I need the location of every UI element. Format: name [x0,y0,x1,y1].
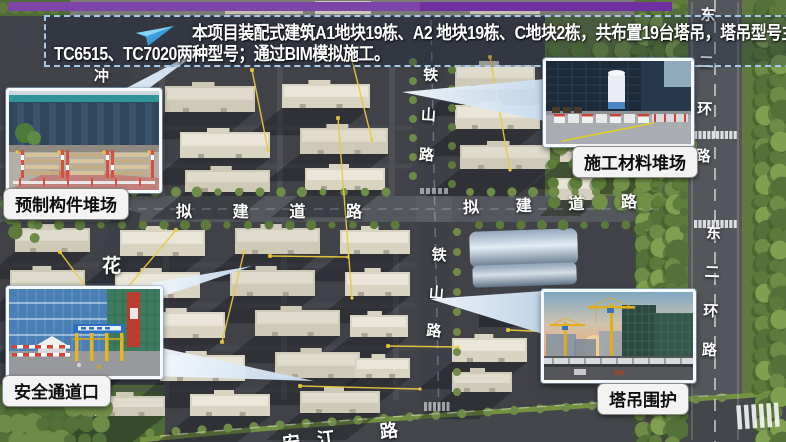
slide-accent-bar-highlight [8,2,420,11]
callout-label-materials-yard: 施工材料堆场 [572,146,698,178]
precast-yard-photo [9,91,159,190]
materials-yard-photo [546,61,691,144]
inset-image-materials-yard [543,58,694,147]
callout-label-safety-passage: 安全通道口 [2,375,111,407]
safety-passage-photo [9,289,160,376]
crane-enclosure-photo [544,292,693,380]
inset-image-precast-yard [6,88,162,193]
callout-label-precast-yard: 预制构件堆场 [3,188,129,220]
inset-image-safety-passage [6,286,163,379]
banner-text-line-2: TC6515、TC7020两种型号；通过BIM模拟施工。 [54,40,389,66]
site-aerial-view: 拟 建 道 路 拟 建 道 路 铁 山 路 铁 山 路 东 二 环 路 东 二 … [0,0,786,442]
inset-image-crane-enclosure [541,289,696,383]
callout-label-crane-enclosure: 塔吊围护 [597,383,689,415]
